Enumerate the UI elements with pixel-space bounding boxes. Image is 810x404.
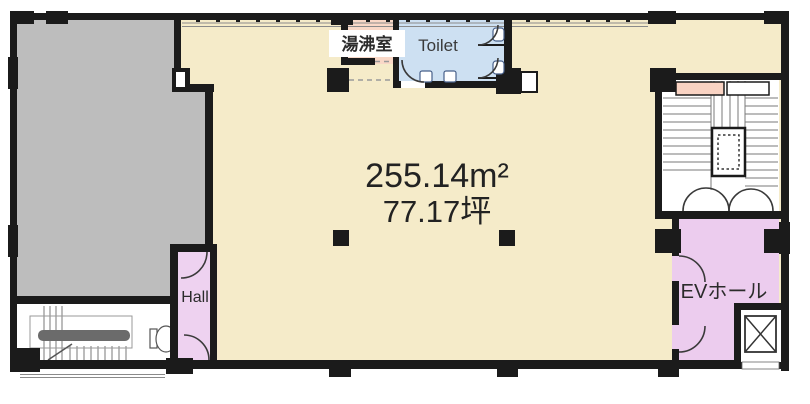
duct-shaft-marker bbox=[676, 82, 724, 95]
floor-plan: 湯沸室 Toilet 255.14m² 77.17坪 Hall EVホール bbox=[0, 0, 810, 404]
adjacent-area-lower bbox=[17, 248, 172, 302]
ne-landing-marker bbox=[727, 82, 769, 95]
area-tsubo-label: 77.17坪 bbox=[383, 194, 492, 229]
hall-room bbox=[178, 252, 212, 362]
pilaster bbox=[521, 72, 537, 92]
adjacent-area-mid bbox=[17, 88, 210, 248]
elevator-door-opening bbox=[742, 362, 779, 369]
adjacent-area-upper bbox=[17, 20, 177, 90]
area-sqm-label: 255.14m² bbox=[365, 157, 509, 195]
kitchenette-label: 湯沸室 bbox=[342, 34, 393, 54]
floor-plan-drawing: 湯沸室 Toilet 255.14m² 77.17坪 Hall EVホール bbox=[0, 0, 810, 404]
toilet-label: Toilet bbox=[418, 36, 458, 55]
ev-hall-label: EVホール bbox=[681, 281, 768, 303]
hall-label: Hall bbox=[181, 289, 209, 306]
sw-stair-handrail bbox=[38, 330, 130, 341]
ne-stair-core bbox=[712, 128, 745, 176]
adjacent-door-opening bbox=[176, 72, 185, 87]
elevator-shaft bbox=[741, 310, 781, 369]
